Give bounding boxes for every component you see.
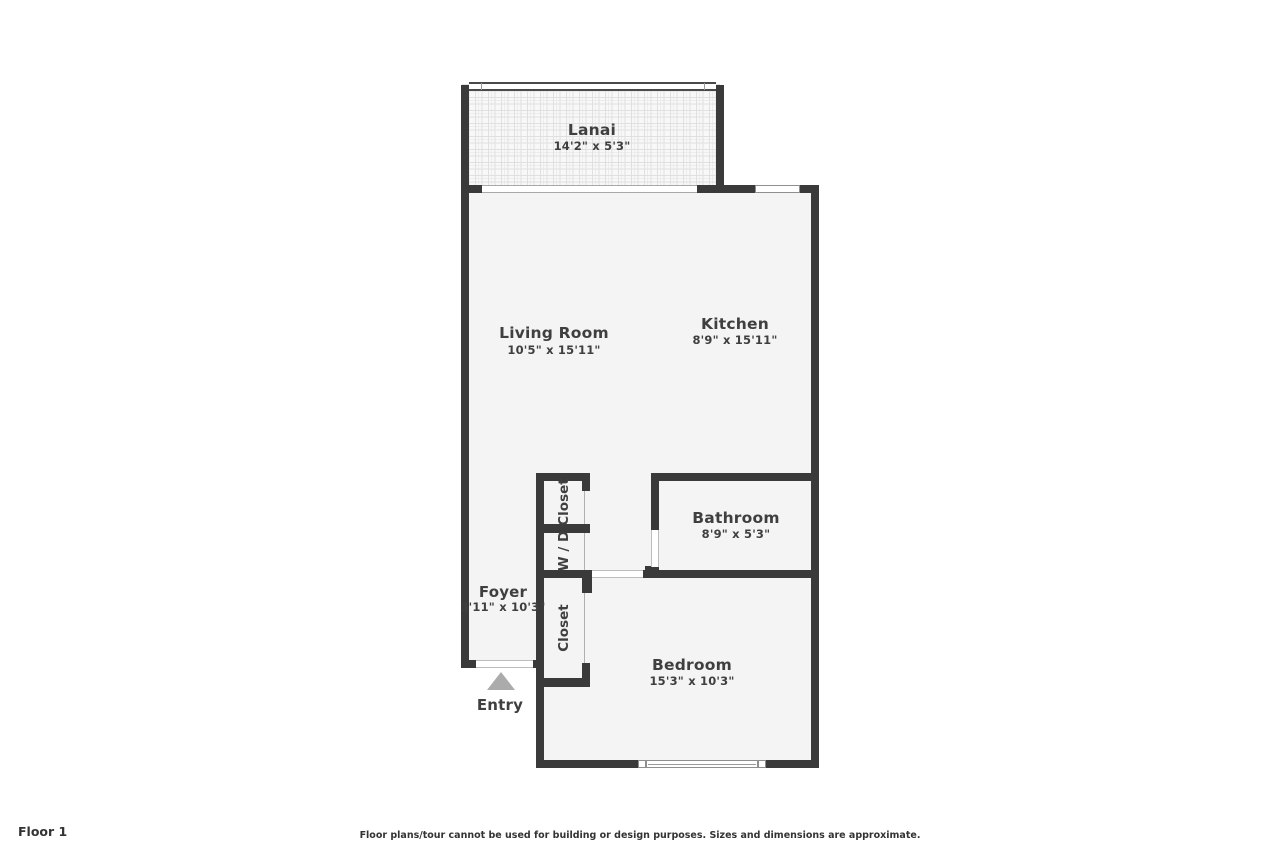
room-name-text: Bathroom (692, 509, 779, 527)
room-dims-text: 14'2" x 5'3" (554, 139, 631, 153)
wall-column-right-top (582, 473, 590, 491)
wall-mid-seg2 (643, 570, 819, 578)
room-dims-text: 8'9" x 15'11" (692, 333, 777, 347)
floor-plan-page: Lanai 14'2" x 5'3" Living Room 10'5" x 1… (0, 0, 1280, 853)
room-dims-text: 8'9" x 5'3" (702, 527, 771, 541)
wall-foyer-bottom-seg1 (461, 660, 476, 668)
closet-bottom-label: Closet (556, 604, 572, 651)
wall-bedroom-bottom-seg2 (766, 760, 819, 768)
wd-door-line (584, 533, 585, 570)
entry-door-opening (476, 660, 533, 668)
living-room-dims: 10'5" x 15'11" (507, 343, 600, 357)
kitchen-label: Kitchen (701, 315, 769, 333)
wall-bathroom-top (651, 473, 819, 481)
room-name-text: W / D (556, 531, 572, 571)
bedroom-window-cap-left (638, 760, 646, 768)
room-name-text: Foyer (479, 583, 527, 601)
bedroom-door-opening (592, 570, 643, 578)
foyer-dims: 3'11" x 10'3" (460, 600, 545, 614)
railing-tick-right (704, 83, 705, 90)
lanai-dims: 14'2" x 5'3" (554, 139, 631, 153)
room-name-text: Closet (556, 604, 572, 651)
wall-closet-bottom (536, 678, 590, 687)
entry-label: Entry (477, 696, 523, 714)
wall-closet-bottom-right-upper (582, 570, 592, 593)
sliding-door (482, 185, 697, 193)
wall-lanai-right (716, 85, 724, 193)
wall-lanai-left (461, 85, 469, 193)
wall-bathroom-corner (645, 566, 659, 578)
room-name-text: Bedroom (652, 656, 732, 674)
entry-arrow-icon (487, 672, 515, 690)
bathroom-door-opening (651, 530, 659, 567)
lanai-railing (469, 82, 716, 91)
washer-dryer-label: W / D (556, 531, 572, 571)
window-pane-line (648, 764, 756, 765)
room-name-text: Entry (477, 696, 523, 714)
bathroom-label: Bathroom (692, 509, 779, 527)
room-name-text: Closet (556, 478, 572, 525)
wall-left-outer (461, 185, 469, 668)
bedroom-label: Bedroom (652, 656, 732, 674)
wall-top-seg2 (697, 185, 755, 193)
kitchen-window (755, 185, 800, 193)
lanai-label: Lanai (568, 121, 616, 139)
wall-bedroom-bottom-seg1 (536, 760, 638, 768)
bathroom-dims: 8'9" x 5'3" (702, 527, 771, 541)
room-dims-text: 10'5" x 15'11" (507, 343, 600, 357)
railing-tick-left (481, 83, 482, 90)
closet-top-label: Closet (556, 478, 572, 525)
bedroom-window-cap-right (758, 760, 766, 768)
bedroom-dims: 15'3" x 10'3" (649, 674, 734, 688)
foyer-label: Foyer (479, 583, 527, 601)
room-name-text: Living Room (499, 324, 609, 342)
living-room-label: Living Room (499, 324, 609, 342)
room-name-text: Kitchen (701, 315, 769, 333)
wall-column-left (536, 473, 544, 768)
disclaimer: Floor plans/tour cannot be used for buil… (0, 830, 1280, 841)
closet-top-door-line (584, 491, 585, 524)
kitchen-dims: 8'9" x 15'11" (692, 333, 777, 347)
wall-bathroom-left (651, 473, 659, 530)
room-name-text: Lanai (568, 121, 616, 139)
room-dims-text: 15'3" x 10'3" (649, 674, 734, 688)
bedroom-window (646, 760, 758, 768)
disclaimer-text: Floor plans/tour cannot be used for buil… (360, 830, 921, 841)
room-dims-text: 3'11" x 10'3" (460, 600, 545, 614)
closet-bottom-door-line (584, 593, 585, 663)
